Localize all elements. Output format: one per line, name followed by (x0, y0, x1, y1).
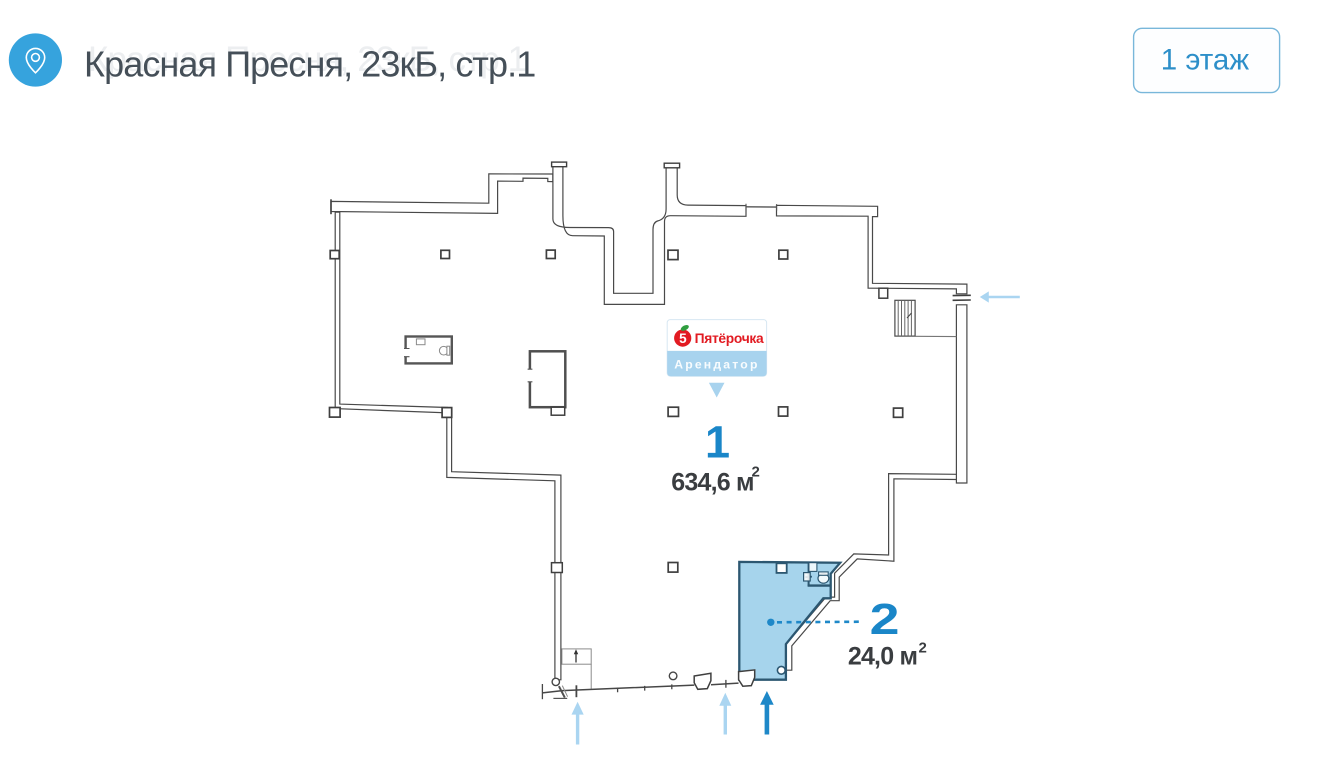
svg-text:Красная Пресня, 23кБ, стр.1: Красная Пресня, 23кБ, стр.1 (84, 44, 535, 85)
svg-text:2: 2 (919, 640, 927, 657)
svg-text:1: 1 (705, 417, 730, 468)
svg-text:Арендатор: Арендатор (674, 357, 759, 371)
svg-text:Пятёрочка: Пятёрочка (695, 331, 764, 346)
svg-text:1 этаж: 1 этаж (1161, 43, 1250, 76)
svg-text:5: 5 (679, 331, 687, 346)
svg-text:24,0 м: 24,0 м (848, 643, 917, 671)
svg-text:634,6 м: 634,6 м (671, 469, 753, 497)
svg-text:2: 2 (870, 595, 900, 643)
svg-text:2: 2 (752, 464, 760, 481)
